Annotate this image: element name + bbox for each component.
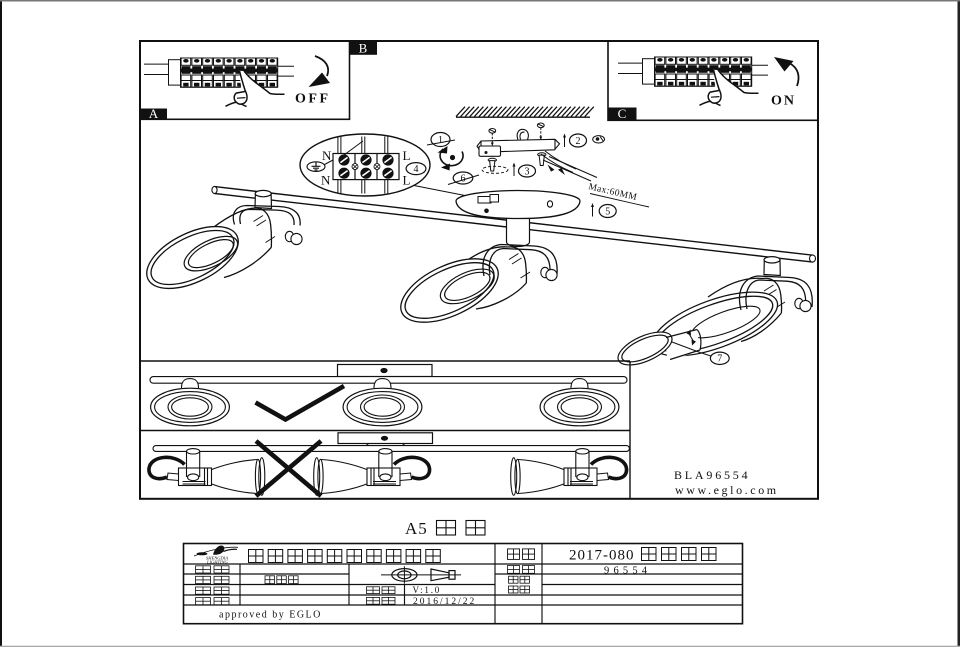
svg-text:1: 1 xyxy=(438,135,443,146)
svg-text:B: B xyxy=(359,41,368,56)
svg-text:L: L xyxy=(403,148,411,163)
svg-text:2: 2 xyxy=(576,136,581,147)
svg-text:96554: 96554 xyxy=(604,566,651,577)
svg-text:OFF: OFF xyxy=(295,92,331,107)
svg-text:N: N xyxy=(321,173,331,188)
svg-text:4: 4 xyxy=(414,164,419,175)
svg-text:3: 3 xyxy=(525,166,530,177)
svg-text:V:1.0: V:1.0 xyxy=(413,585,442,595)
svg-text:5: 5 xyxy=(605,206,610,217)
svg-text:L: L xyxy=(403,173,411,188)
svg-text:2016/12/22: 2016/12/22 xyxy=(413,597,476,607)
svg-text:Max:60MM: Max:60MM xyxy=(587,182,638,203)
svg-text:2017-080: 2017-080 xyxy=(569,548,635,564)
svg-text:C: C xyxy=(618,106,627,121)
svg-text:7: 7 xyxy=(717,354,722,365)
svg-text:N: N xyxy=(322,148,332,163)
svg-text:A: A xyxy=(149,106,159,121)
svg-text:ON: ON xyxy=(771,94,796,109)
svg-text:A5: A5 xyxy=(405,519,428,538)
svg-text:LIGHTING: LIGHTING xyxy=(206,560,229,565)
svg-text:approved by EGLO: approved by EGLO xyxy=(219,610,322,621)
svg-text:BLA96554: BLA96554 xyxy=(674,468,750,482)
svg-text:www.eglo.com: www.eglo.com xyxy=(675,483,779,497)
